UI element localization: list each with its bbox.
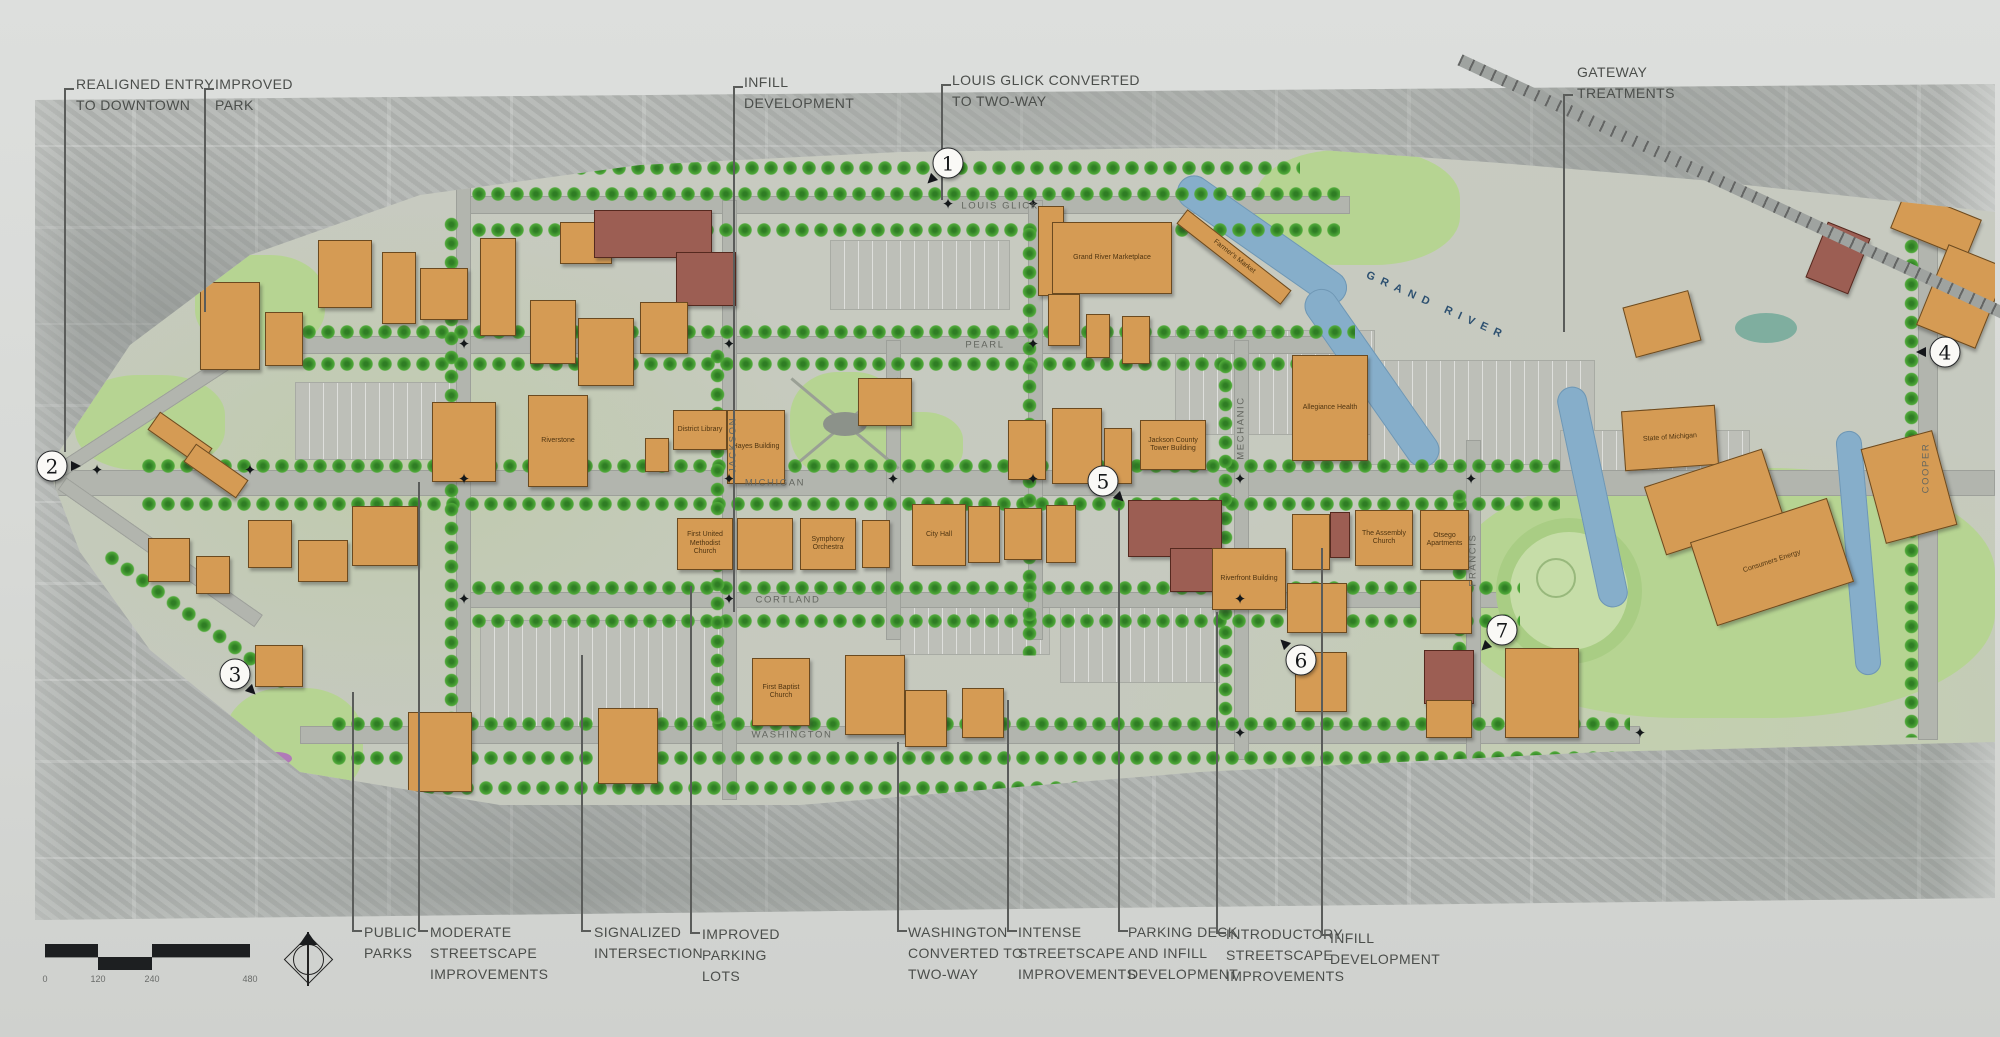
map-overlay-layer: LOUIS GLICKPEARLMICHIGANCORTLANDWASHINGT…	[0, 0, 2000, 1037]
callout-leader-tick	[733, 86, 743, 88]
scale-tick-240: 240	[144, 974, 159, 984]
callout-leader-tick	[64, 88, 74, 90]
railroad-line	[1457, 54, 2000, 335]
callout-label: LOUIS GLICK CONVERTED TO TWO-WAY	[952, 70, 1140, 112]
scale-bar-segment	[98, 957, 152, 970]
map-marker-5: 5	[1088, 466, 1119, 497]
callout-leader-tick	[352, 930, 362, 932]
callout-leader-tick	[1007, 930, 1017, 932]
street-label-pearl: PEARL	[965, 340, 1004, 351]
callout-leader-line	[690, 586, 692, 932]
callout-leader-tick	[1321, 934, 1331, 936]
callout-leader-line	[1118, 508, 1120, 930]
callout-leader-line	[581, 655, 583, 930]
map-marker-4: 4	[1930, 337, 1961, 368]
master-plan-poster: Grand River MarketplaceFarmer's MarketRi…	[0, 0, 2000, 1037]
scale-tick-0: 0	[42, 974, 47, 984]
scale-bar: 0 120 240 480	[45, 938, 275, 988]
callout-leader-line	[1563, 94, 1565, 332]
map-marker-arrow-icon	[1916, 347, 1926, 357]
callout-leader-line	[204, 88, 206, 312]
callout-leader-tick	[690, 932, 700, 934]
callout-leader-tick	[1118, 930, 1128, 932]
callout-leader-line	[733, 86, 735, 612]
callout-leader-line	[64, 88, 66, 452]
scale-bar-segment	[152, 944, 250, 957]
callout-leader-line	[1216, 612, 1218, 932]
map-marker-1: 1	[933, 148, 964, 179]
callout-leader-tick	[941, 84, 951, 86]
street-label-cortland: CORTLAND	[756, 595, 821, 606]
callout-label: GATEWAY TREATMENTS	[1577, 62, 1675, 104]
street-label-louis-glick: LOUIS GLICK	[961, 201, 1038, 212]
street-label-cooper: COOPER	[1921, 443, 1932, 494]
north-compass-icon	[282, 930, 334, 990]
river-label-grand-river: GRAND RIVER	[1364, 269, 1510, 343]
callout-leader-tick	[418, 930, 428, 932]
callout-leader-tick	[581, 930, 591, 932]
callout-label: IMPROVED PARK	[215, 74, 293, 116]
street-label-mechanic: MECHANIC	[1236, 396, 1247, 459]
north-arrow-icon	[299, 932, 317, 945]
callout-label: MODERATE STREETSCAPE IMPROVEMENTS	[430, 922, 548, 985]
callout-label: INFILL DEVELOPMENT	[744, 72, 854, 114]
callout-label: REALIGNED ENTRY TO DOWNTOWN	[76, 74, 214, 116]
callout-leader-tick	[204, 88, 214, 90]
scale-tick-480: 480	[242, 974, 257, 984]
map-marker-7: 7	[1487, 615, 1518, 646]
callout-leader-line	[941, 84, 943, 200]
map-marker-3: 3	[220, 659, 251, 690]
callout-label: SIGNALIZED INTERSECTION	[594, 922, 703, 964]
street-label-francis: FRANCIS	[1468, 534, 1479, 587]
callout-label: INFILL DEVELOPMENT	[1330, 928, 1440, 970]
callout-leader-line	[1321, 548, 1323, 934]
callout-leader-line	[897, 742, 899, 930]
callout-label: PUBLIC PARKS	[364, 922, 417, 964]
callout-leader-line	[1007, 700, 1009, 930]
callout-leader-tick	[897, 930, 907, 932]
callout-leader-tick	[1216, 932, 1226, 934]
street-label-michigan: MICHIGAN	[745, 478, 805, 489]
map-marker-6: 6	[1286, 645, 1317, 676]
map-marker-arrow-icon	[71, 461, 81, 471]
scale-bar-segment	[45, 944, 98, 957]
callout-leader-tick	[1563, 94, 1573, 96]
callout-label: WASHINGTON CONVERTED TO TWO-WAY	[908, 922, 1023, 985]
callout-label: IMPROVED PARKING LOTS	[702, 924, 780, 987]
callout-leader-line	[352, 692, 354, 930]
map-marker-2: 2	[37, 451, 68, 482]
scale-tick-120: 120	[90, 974, 105, 984]
callout-leader-line	[418, 482, 420, 930]
street-label-washington: WASHINGTON	[752, 730, 833, 741]
